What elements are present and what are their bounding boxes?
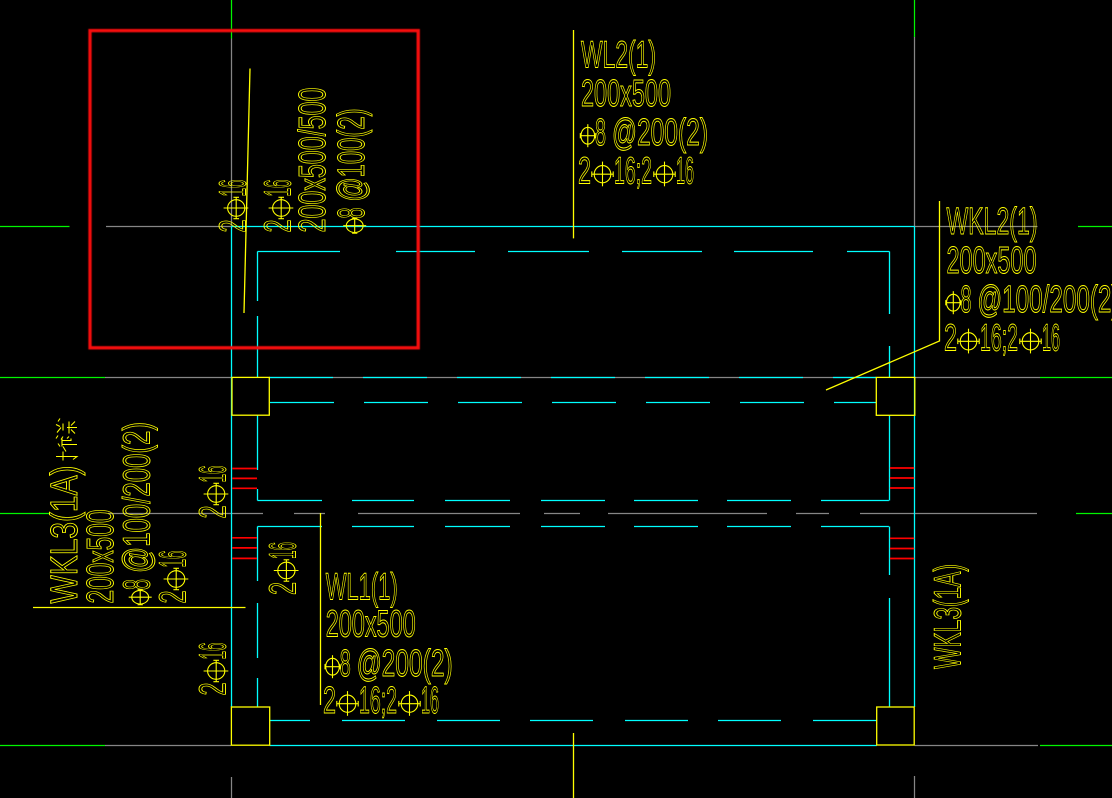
svg-text:8: 8	[117, 579, 159, 590]
svg-text:16: 16	[213, 180, 255, 197]
svg-text:8: 8	[331, 208, 373, 219]
svg-text:200x500/500: 200x500/500	[292, 88, 334, 233]
svg-text:16;2: 16;2	[980, 318, 1018, 360]
svg-text:16: 16	[676, 151, 694, 193]
svg-text:16: 16	[153, 551, 195, 568]
svg-text:WL2(1): WL2(1)	[581, 35, 656, 77]
svg-text:2: 2	[193, 506, 235, 519]
svg-text:8: 8	[595, 112, 606, 154]
svg-text:16: 16	[421, 680, 439, 722]
svg-text:16;2: 16;2	[614, 151, 652, 193]
svg-text:16: 16	[263, 542, 305, 559]
svg-text:2: 2	[578, 151, 591, 193]
svg-text:@100/200(2): @100/200(2)	[117, 422, 159, 573]
svg-text:@200(2): @200(2)	[357, 643, 453, 685]
svg-text:16: 16	[1042, 318, 1060, 360]
svg-text:WKL3(1A): WKL3(1A)	[928, 564, 970, 669]
svg-text:2: 2	[263, 582, 305, 595]
svg-text:2: 2	[193, 683, 235, 696]
svg-text:16: 16	[193, 466, 235, 483]
svg-text:200x500: 200x500	[326, 604, 416, 646]
svg-text:8: 8	[340, 643, 351, 685]
svg-text:200x500: 200x500	[581, 73, 671, 115]
svg-text:16;2: 16;2	[359, 680, 397, 722]
svg-text:WL1(1): WL1(1)	[326, 567, 398, 609]
svg-text:2: 2	[323, 680, 336, 722]
svg-text:@100(2): @100(2)	[331, 109, 373, 202]
svg-text:2: 2	[944, 318, 957, 360]
svg-text:2: 2	[213, 220, 255, 233]
svg-text:@100/200(2): @100/200(2)	[978, 279, 1112, 321]
svg-text:8: 8	[961, 279, 972, 321]
svg-text:2: 2	[153, 591, 195, 604]
svg-text:@200(2): @200(2)	[612, 112, 708, 154]
svg-text:200x500: 200x500	[947, 240, 1037, 282]
svg-text:WKL2(1): WKL2(1)	[947, 201, 1038, 243]
svg-text:16: 16	[193, 643, 235, 660]
